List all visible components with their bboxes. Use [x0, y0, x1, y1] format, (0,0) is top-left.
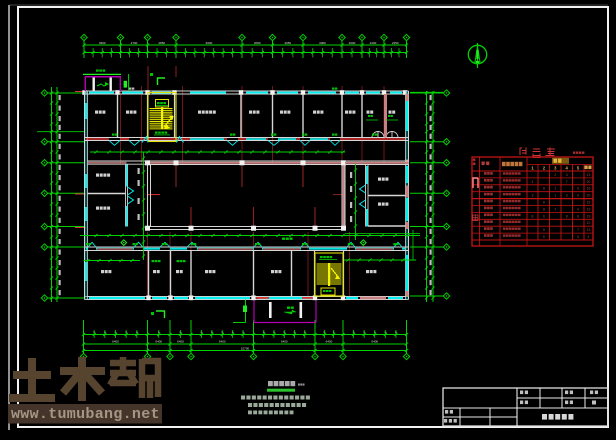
- svg-text:1: 1: [554, 194, 556, 198]
- svg-text:6: 6: [577, 187, 579, 191]
- svg-text:5: 5: [543, 228, 545, 232]
- svg-text:15: 15: [587, 201, 591, 205]
- svg-text:19: 19: [587, 214, 591, 218]
- svg-text:16: 16: [587, 187, 591, 191]
- svg-text:3: 3: [532, 194, 534, 198]
- svg-text:13: 13: [587, 228, 591, 232]
- svg-text:6400: 6400: [155, 340, 162, 344]
- svg-text:20: 20: [587, 194, 591, 198]
- svg-text:3900: 3900: [319, 41, 326, 45]
- svg-text:8: 8: [532, 214, 534, 218]
- svg-text:8: 8: [543, 187, 545, 191]
- svg-text:6: 6: [543, 214, 545, 218]
- svg-text:6400: 6400: [112, 340, 119, 344]
- svg-text:2: 2: [554, 173, 556, 177]
- svg-text:6400: 6400: [371, 340, 378, 344]
- svg-text:12: 12: [587, 221, 591, 225]
- svg-text:7: 7: [577, 228, 579, 232]
- svg-text:8: 8: [577, 214, 579, 218]
- svg-text:6400: 6400: [326, 340, 333, 344]
- svg-text:6400: 6400: [281, 340, 288, 344]
- svg-text:51700: 51700: [241, 347, 250, 351]
- svg-text:2700: 2700: [131, 41, 138, 45]
- svg-text:7: 7: [554, 207, 556, 211]
- svg-text:3050: 3050: [284, 41, 291, 45]
- svg-text:4: 4: [577, 207, 579, 211]
- svg-text:2850: 2850: [158, 41, 165, 45]
- svg-text:19: 19: [587, 207, 591, 211]
- svg-text:8: 8: [543, 207, 545, 211]
- svg-text:2000: 2000: [349, 41, 356, 45]
- svg-text:3050: 3050: [254, 41, 261, 45]
- svg-text:2250: 2250: [392, 41, 399, 45]
- svg-text:7: 7: [566, 180, 568, 184]
- svg-text:4: 4: [532, 180, 534, 184]
- svg-text:6400: 6400: [177, 340, 184, 344]
- svg-text:2200: 2200: [370, 41, 377, 45]
- svg-text:3: 3: [566, 173, 568, 177]
- svg-text:4: 4: [588, 235, 590, 239]
- svg-text:6600: 6600: [206, 41, 213, 45]
- svg-text:www.tumubang.net: www.tumubang.net: [11, 406, 160, 423]
- svg-text:3600: 3600: [99, 41, 106, 45]
- svg-text:13: 13: [587, 173, 591, 177]
- svg-text:20: 20: [587, 180, 591, 184]
- svg-text:3: 3: [566, 194, 568, 198]
- svg-text:6: 6: [543, 235, 545, 239]
- svg-text:8: 8: [566, 214, 568, 218]
- svg-text:6: 6: [577, 235, 579, 239]
- svg-text:6400: 6400: [219, 340, 226, 344]
- svg-text:6: 6: [577, 194, 579, 198]
- svg-text:8: 8: [543, 201, 545, 205]
- svg-text:1: 1: [554, 187, 556, 191]
